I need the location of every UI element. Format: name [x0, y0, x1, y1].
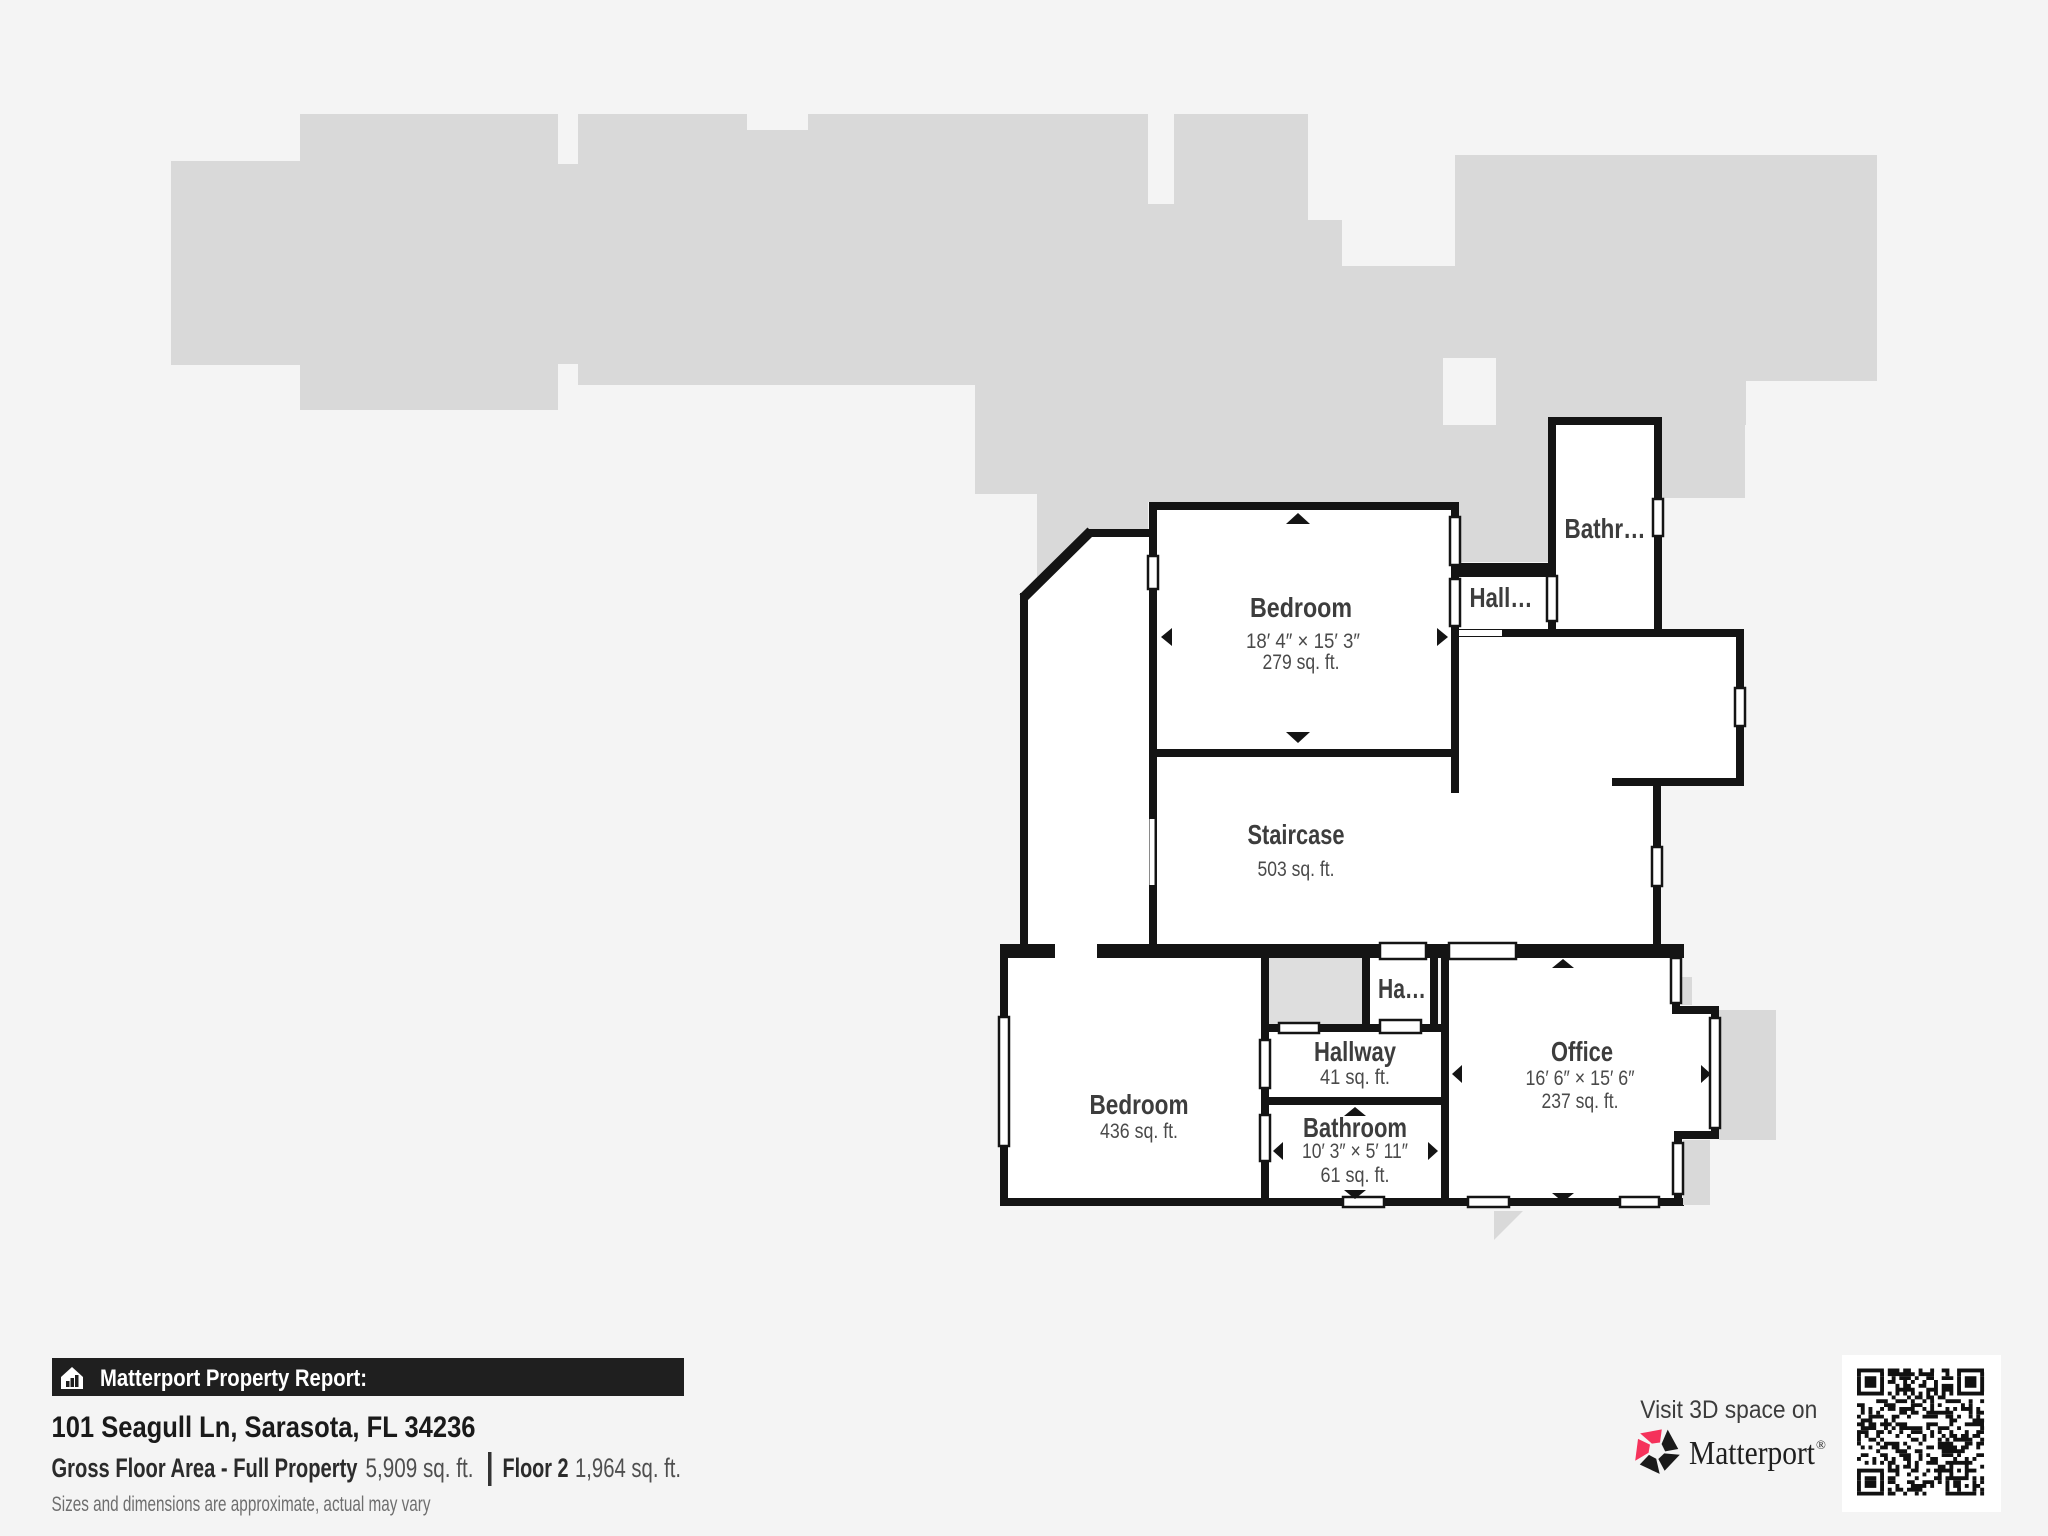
svg-text:436 sq. ft.: 436 sq. ft. [1100, 1120, 1178, 1143]
svg-text:Gross Floor Area - Full Proper: Gross Floor Area - Full Property [52, 1453, 358, 1483]
svg-text:279 sq. ft.: 279 sq. ft. [1263, 651, 1340, 674]
svg-text:10′ 3″ × 5′ 11″: 10′ 3″ × 5′ 11″ [1302, 1140, 1408, 1163]
svg-text:Visit 3D space on: Visit 3D space on [1640, 1396, 1817, 1424]
svg-text:Bedroom: Bedroom [1250, 592, 1352, 623]
svg-text:503 sq. ft.: 503 sq. ft. [1258, 858, 1335, 881]
svg-text:101 Seagull Ln, Sarasota, FL 3: 101 Seagull Ln, Sarasota, FL 34236 [52, 1411, 476, 1444]
svg-text:1,964 sq. ft.: 1,964 sq. ft. [575, 1453, 681, 1483]
svg-text:Sizes and dimensions are appro: Sizes and dimensions are approximate, ac… [52, 1493, 431, 1516]
svg-text:Hall…: Hall… [1470, 582, 1533, 613]
svg-text:5,909 sq. ft.: 5,909 sq. ft. [366, 1453, 474, 1483]
svg-text:Office: Office [1551, 1036, 1613, 1067]
svg-text:Bathr…: Bathr… [1565, 513, 1646, 544]
svg-text:237 sq. ft.: 237 sq. ft. [1542, 1090, 1619, 1113]
svg-text:Bathroom: Bathroom [1303, 1112, 1407, 1143]
svg-text:Hallway: Hallway [1314, 1036, 1396, 1067]
svg-text:Ha…: Ha… [1378, 973, 1426, 1004]
svg-text:41 sq. ft.: 41 sq. ft. [1320, 1066, 1390, 1089]
svg-text:Staircase: Staircase [1248, 819, 1345, 850]
svg-text:18′ 4″ × 15′ 3″: 18′ 4″ × 15′ 3″ [1246, 630, 1361, 653]
svg-text:16′ 6″ × 15′ 6″: 16′ 6″ × 15′ 6″ [1526, 1067, 1635, 1090]
svg-text:Matterport Property Report:: Matterport Property Report: [100, 1365, 367, 1392]
svg-text:Bedroom: Bedroom [1090, 1089, 1189, 1120]
svg-text:Floor 2: Floor 2 [503, 1453, 569, 1483]
svg-text:®: ® [1816, 1437, 1826, 1452]
svg-text:Matterport: Matterport [1689, 1435, 1815, 1472]
svg-text:61 sq. ft.: 61 sq. ft. [1321, 1164, 1390, 1187]
